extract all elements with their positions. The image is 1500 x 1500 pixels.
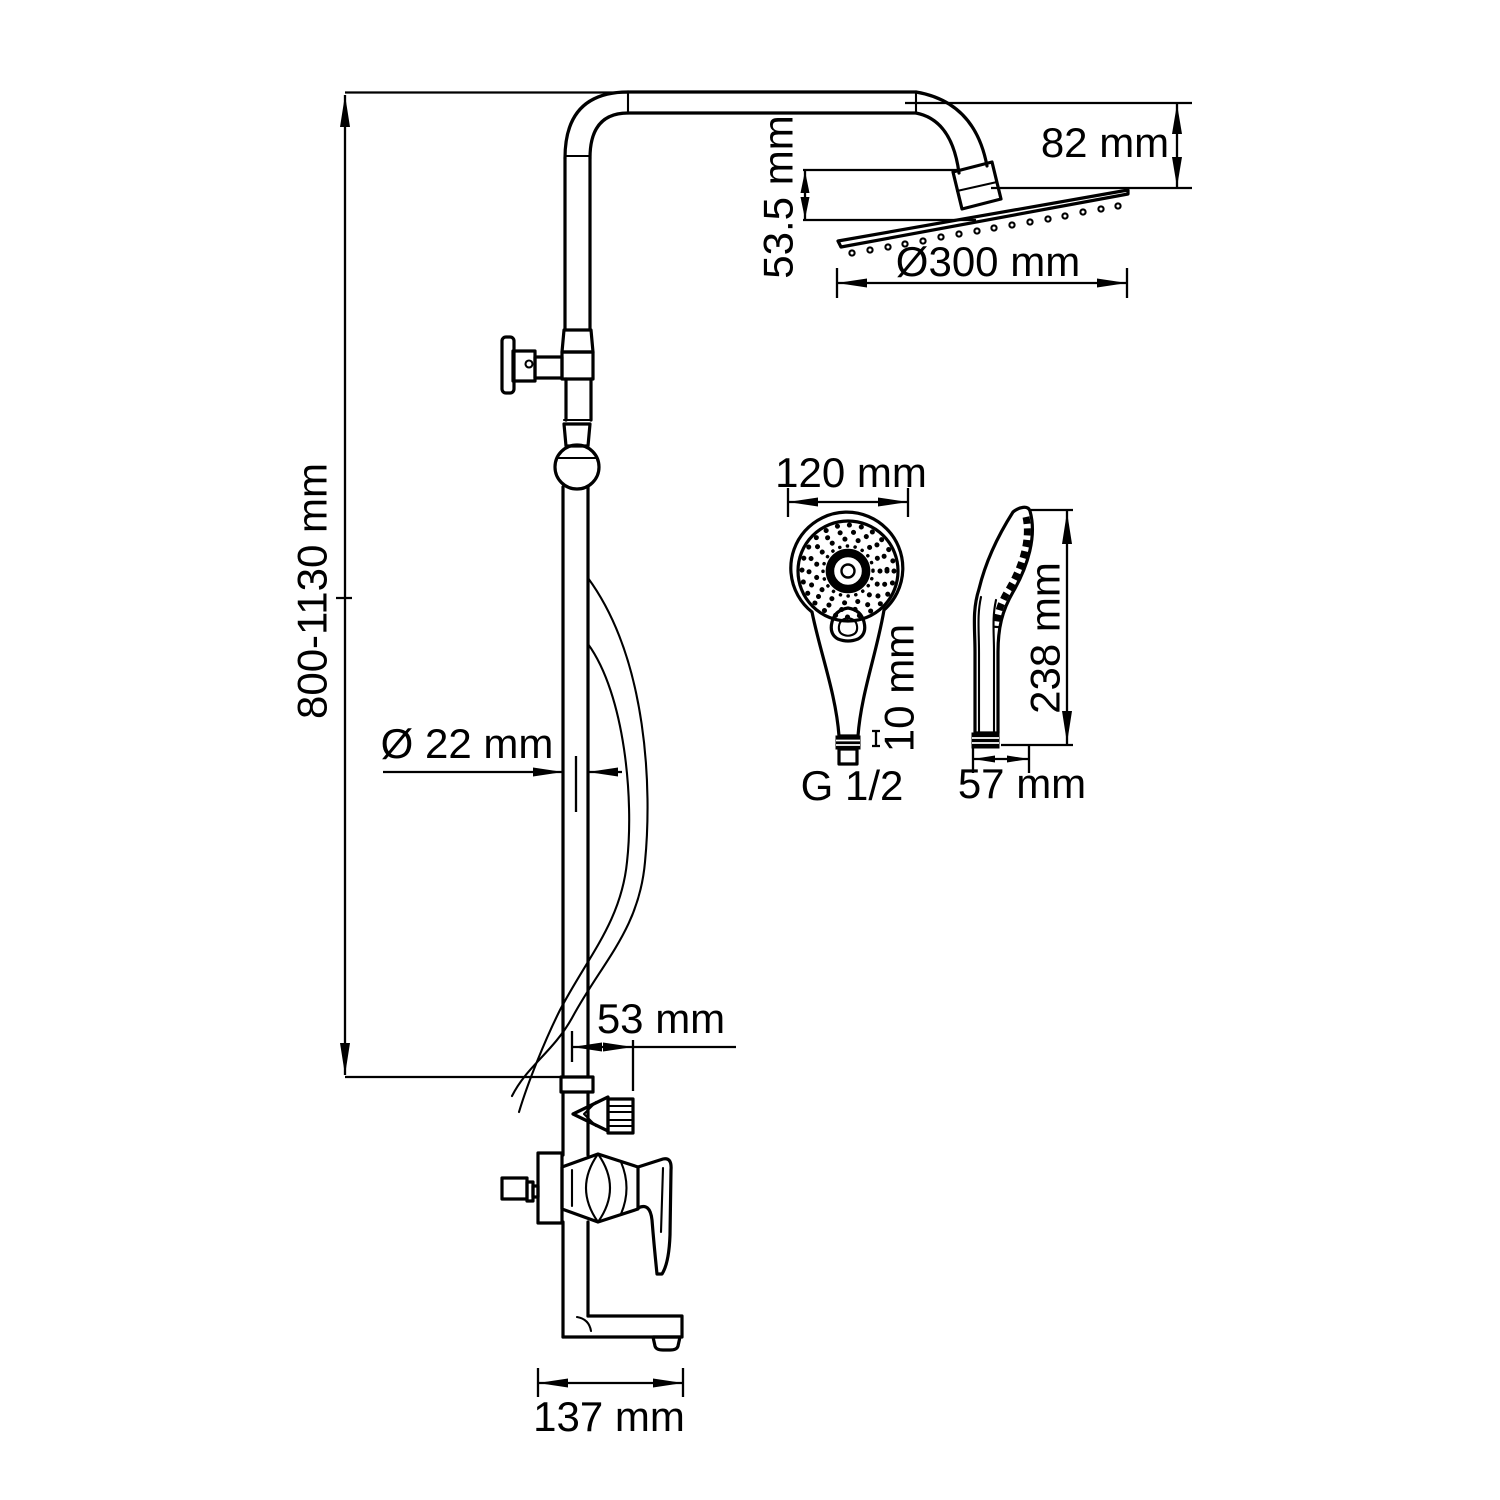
technical-drawing-canvas: 800-1130 mm 82 mm 53.5 mm Ø300 mm Ø 22 m… <box>0 0 1500 1500</box>
center-spray-boss <box>827 550 869 592</box>
dim-outlet-offset: 53 mm <box>572 995 736 1091</box>
riser-pipe-upper <box>565 92 628 329</box>
thread-size-label: G 1/2 <box>801 762 904 809</box>
dim-connector-height-label: 10 mm <box>876 624 923 752</box>
wall-bracket <box>502 337 562 393</box>
dim-connector-height: 10 mm <box>872 624 923 752</box>
hose-outlet <box>573 1097 633 1133</box>
dim-column-height-label: 800-1130 mm <box>289 463 336 719</box>
dim-hand-shower-length-label: 238 mm <box>1022 562 1069 714</box>
dim-spout-reach: 137 mm <box>533 1368 685 1440</box>
spout <box>563 1222 682 1350</box>
dim-hand-shower-depth: 57 mm <box>958 746 1086 807</box>
ball-joint <box>555 445 599 489</box>
mixer-valve-body <box>562 1154 638 1222</box>
mixer-escutcheon <box>538 1153 562 1223</box>
dim-head-drop: 82 mm <box>905 103 1192 188</box>
dim-head-offset-label: 53.5 mm <box>755 115 802 278</box>
side-connector <box>972 733 999 748</box>
dim-hand-shower-width: 120 mm <box>775 449 927 517</box>
thread-size-callout: G 1/2 <box>801 762 904 809</box>
dim-head-diameter: Ø300 mm <box>837 238 1127 298</box>
temperature-knob <box>502 1178 538 1201</box>
shower-system-diagram: 800-1130 mm 82 mm 53.5 mm Ø300 mm Ø 22 m… <box>0 0 1500 1500</box>
hand-shower-connector <box>836 736 860 764</box>
dim-head-diameter-label: Ø300 mm <box>896 238 1080 285</box>
dim-hand-shower-width-label: 120 mm <box>775 449 927 496</box>
dim-spout-reach-label: 137 mm <box>533 1393 685 1440</box>
mixer-lever-handle <box>638 1159 671 1274</box>
dim-pipe-diameter-label: Ø 22 mm <box>381 720 554 767</box>
dim-hand-shower-length: 238 mm <box>1001 510 1073 745</box>
dim-hand-shower-depth-label: 57 mm <box>958 760 1086 807</box>
slide-connector <box>562 330 593 446</box>
dim-column-height: 800-1130 mm <box>289 93 629 1078</box>
mode-button <box>831 608 865 641</box>
dim-outlet-offset-label: 53 mm <box>597 995 725 1042</box>
dim-head-drop-label: 82 mm <box>1041 119 1169 166</box>
dim-pipe-diameter: Ø 22 mm <box>381 720 622 812</box>
